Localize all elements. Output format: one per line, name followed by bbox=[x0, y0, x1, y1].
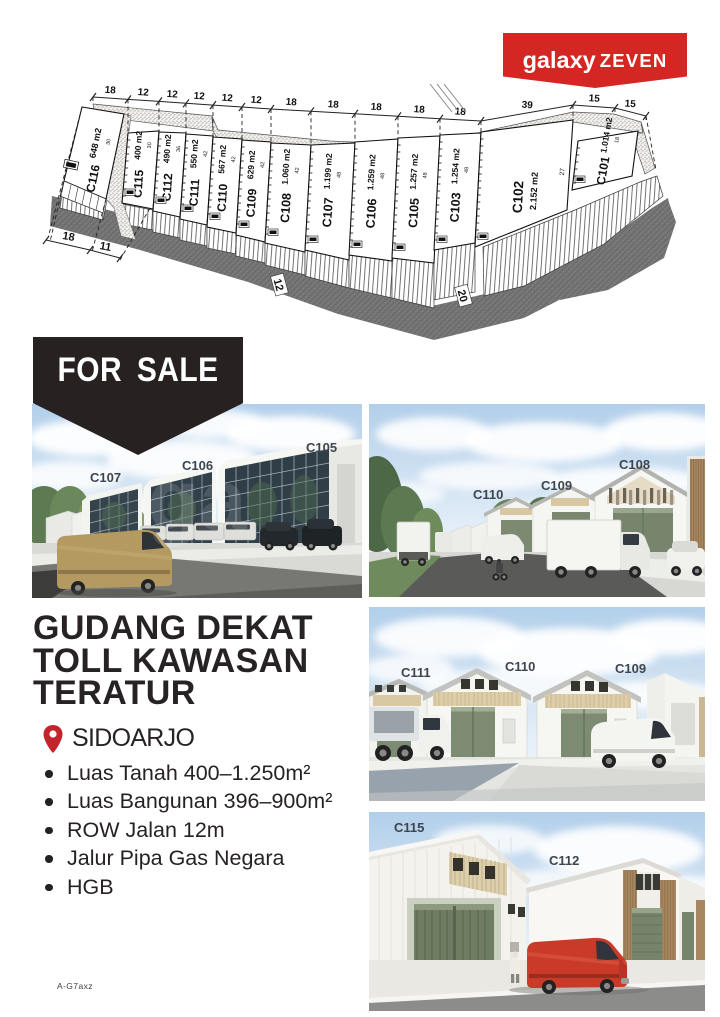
svg-text:C107: C107 bbox=[320, 197, 336, 228]
svg-text:2.152 m2: 2.152 m2 bbox=[528, 172, 540, 211]
svg-text:C105: C105 bbox=[306, 440, 337, 455]
svg-text:C111: C111 bbox=[401, 665, 431, 680]
svg-text:15: 15 bbox=[588, 93, 600, 105]
svg-text:C106: C106 bbox=[363, 198, 379, 229]
svg-text:C108: C108 bbox=[278, 192, 294, 223]
svg-text:C110: C110 bbox=[505, 659, 535, 674]
svg-text:15: 15 bbox=[624, 99, 636, 111]
svg-text:C110: C110 bbox=[473, 487, 503, 502]
svg-text:C109: C109 bbox=[541, 478, 572, 493]
svg-text:48: 48 bbox=[422, 172, 428, 179]
svg-text:48: 48 bbox=[336, 172, 342, 179]
svg-text:12: 12 bbox=[250, 95, 262, 107]
svg-text:550 m2: 550 m2 bbox=[188, 139, 200, 169]
svg-text:12: 12 bbox=[193, 91, 205, 103]
svg-text:42: 42 bbox=[231, 156, 237, 163]
svg-text:C112: C112 bbox=[549, 853, 579, 868]
svg-text:490 m2: 490 m2 bbox=[161, 134, 173, 164]
svg-text:48: 48 bbox=[464, 167, 470, 174]
svg-text:18: 18 bbox=[61, 230, 75, 244]
svg-text:C105: C105 bbox=[406, 197, 422, 228]
svg-text:C110: C110 bbox=[214, 183, 230, 212]
svg-text:27: 27 bbox=[559, 168, 566, 176]
svg-text:C102: C102 bbox=[510, 180, 527, 213]
svg-text:C107: C107 bbox=[90, 470, 121, 485]
svg-text:C108: C108 bbox=[619, 457, 650, 472]
svg-text:18: 18 bbox=[104, 85, 116, 97]
svg-text:42: 42 bbox=[260, 162, 266, 169]
svg-text:42: 42 bbox=[294, 167, 300, 174]
svg-text:42: 42 bbox=[203, 151, 209, 158]
svg-text:12: 12 bbox=[166, 89, 178, 101]
svg-text:12: 12 bbox=[137, 87, 149, 99]
svg-text:C109: C109 bbox=[243, 188, 259, 218]
svg-text:C106: C106 bbox=[182, 458, 213, 473]
svg-text:C109: C109 bbox=[615, 661, 646, 676]
svg-text:C111: C111 bbox=[186, 178, 202, 207]
svg-text:30: 30 bbox=[147, 142, 153, 149]
svg-text:629 m2: 629 m2 bbox=[245, 150, 257, 180]
svg-text:400 m2: 400 m2 bbox=[132, 130, 144, 160]
svg-text:18: 18 bbox=[370, 102, 382, 114]
svg-text:36: 36 bbox=[176, 146, 182, 153]
svg-text:12: 12 bbox=[221, 93, 233, 105]
svg-text:C103: C103 bbox=[447, 192, 463, 223]
svg-text:11: 11 bbox=[99, 240, 113, 254]
svg-text:18: 18 bbox=[285, 97, 297, 109]
svg-text:48: 48 bbox=[380, 173, 386, 180]
svg-text:39: 39 bbox=[521, 100, 533, 112]
svg-text:18: 18 bbox=[413, 104, 425, 116]
svg-text:567 m2: 567 m2 bbox=[216, 144, 228, 174]
svg-text:18: 18 bbox=[614, 137, 621, 144]
svg-text:18: 18 bbox=[327, 99, 339, 111]
svg-text:C115: C115 bbox=[394, 820, 424, 835]
svg-text:30: 30 bbox=[105, 138, 112, 145]
